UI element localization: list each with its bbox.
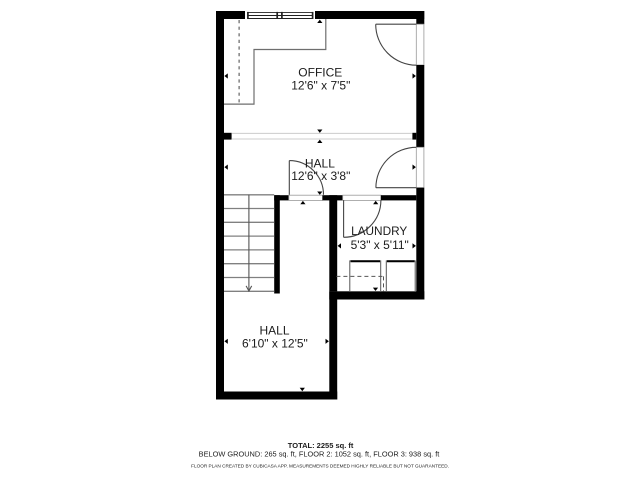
svg-text:12'6" x 3'8": 12'6" x 3'8" <box>291 169 350 183</box>
svg-text:5'3" x 5'11": 5'3" x 5'11" <box>351 238 409 252</box>
svg-text:6'10" x 12'5": 6'10" x 12'5" <box>242 336 308 350</box>
svg-text:12'6" x 7'5": 12'6" x 7'5" <box>291 78 350 92</box>
svg-text:HALL: HALL <box>259 323 289 337</box>
svg-text:LAUNDRY: LAUNDRY <box>351 224 407 238</box>
svg-text:FLOOR PLAN CREATED BY CUBICASA: FLOOR PLAN CREATED BY CUBICASA APP. MEAS… <box>191 463 449 468</box>
svg-text:BELOW GROUND: 265 sq. ft, FLOO: BELOW GROUND: 265 sq. ft, FLOOR 2: 1052 … <box>199 449 440 458</box>
